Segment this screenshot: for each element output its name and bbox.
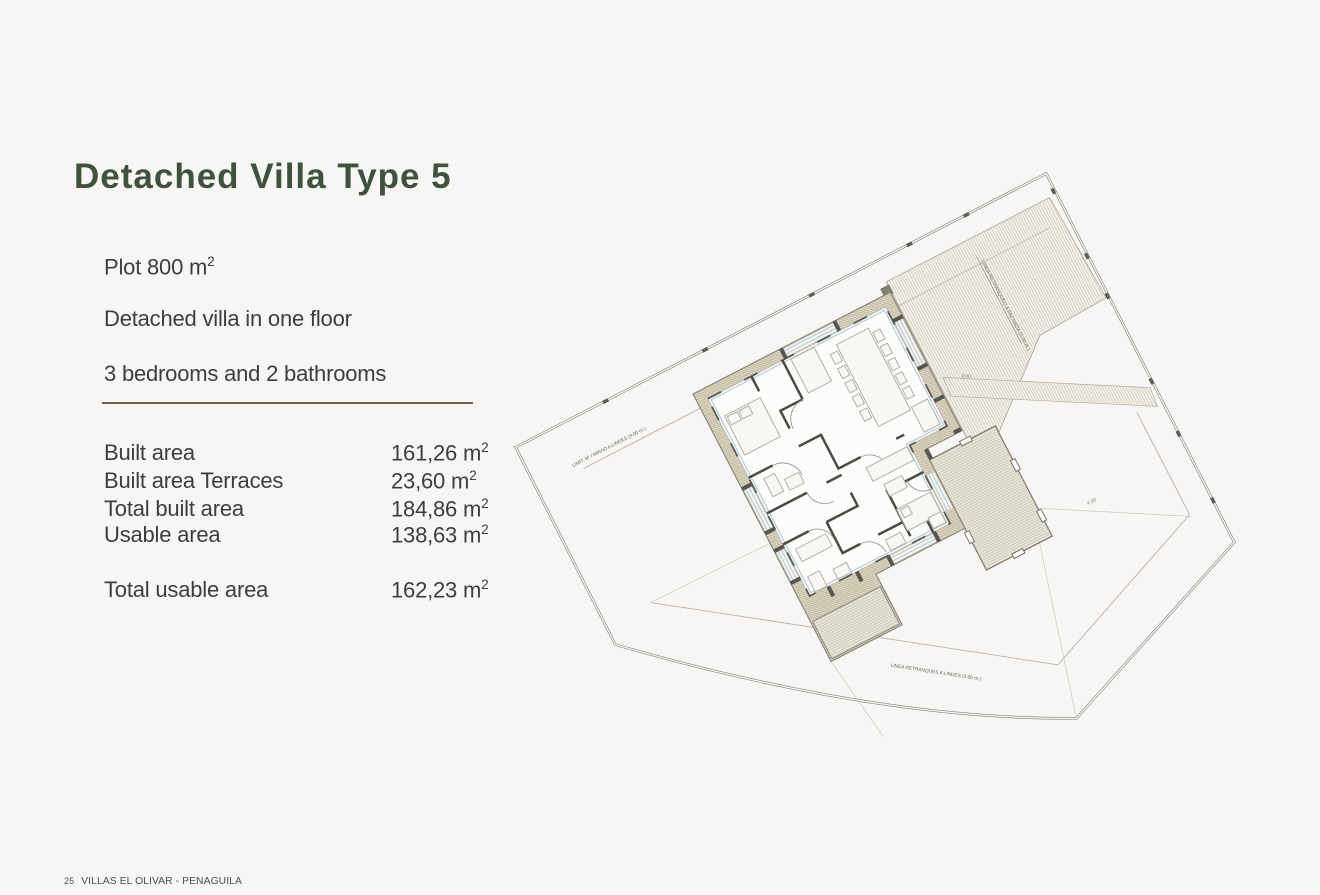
svg-text:LIMIT. M' / MIRAD A LINDES (3.: LIMIT. M' / MIRAD A LINDES (3.00 m.) [571,426,647,469]
svg-text:LINEA RETRANQUES A LINDES (2.0: LINEA RETRANQUES A LINDES (2.00 m.) [890,663,982,683]
svg-text:4.00: 4.00 [1086,497,1098,507]
svg-text:4.00: 4.00 [961,373,971,379]
